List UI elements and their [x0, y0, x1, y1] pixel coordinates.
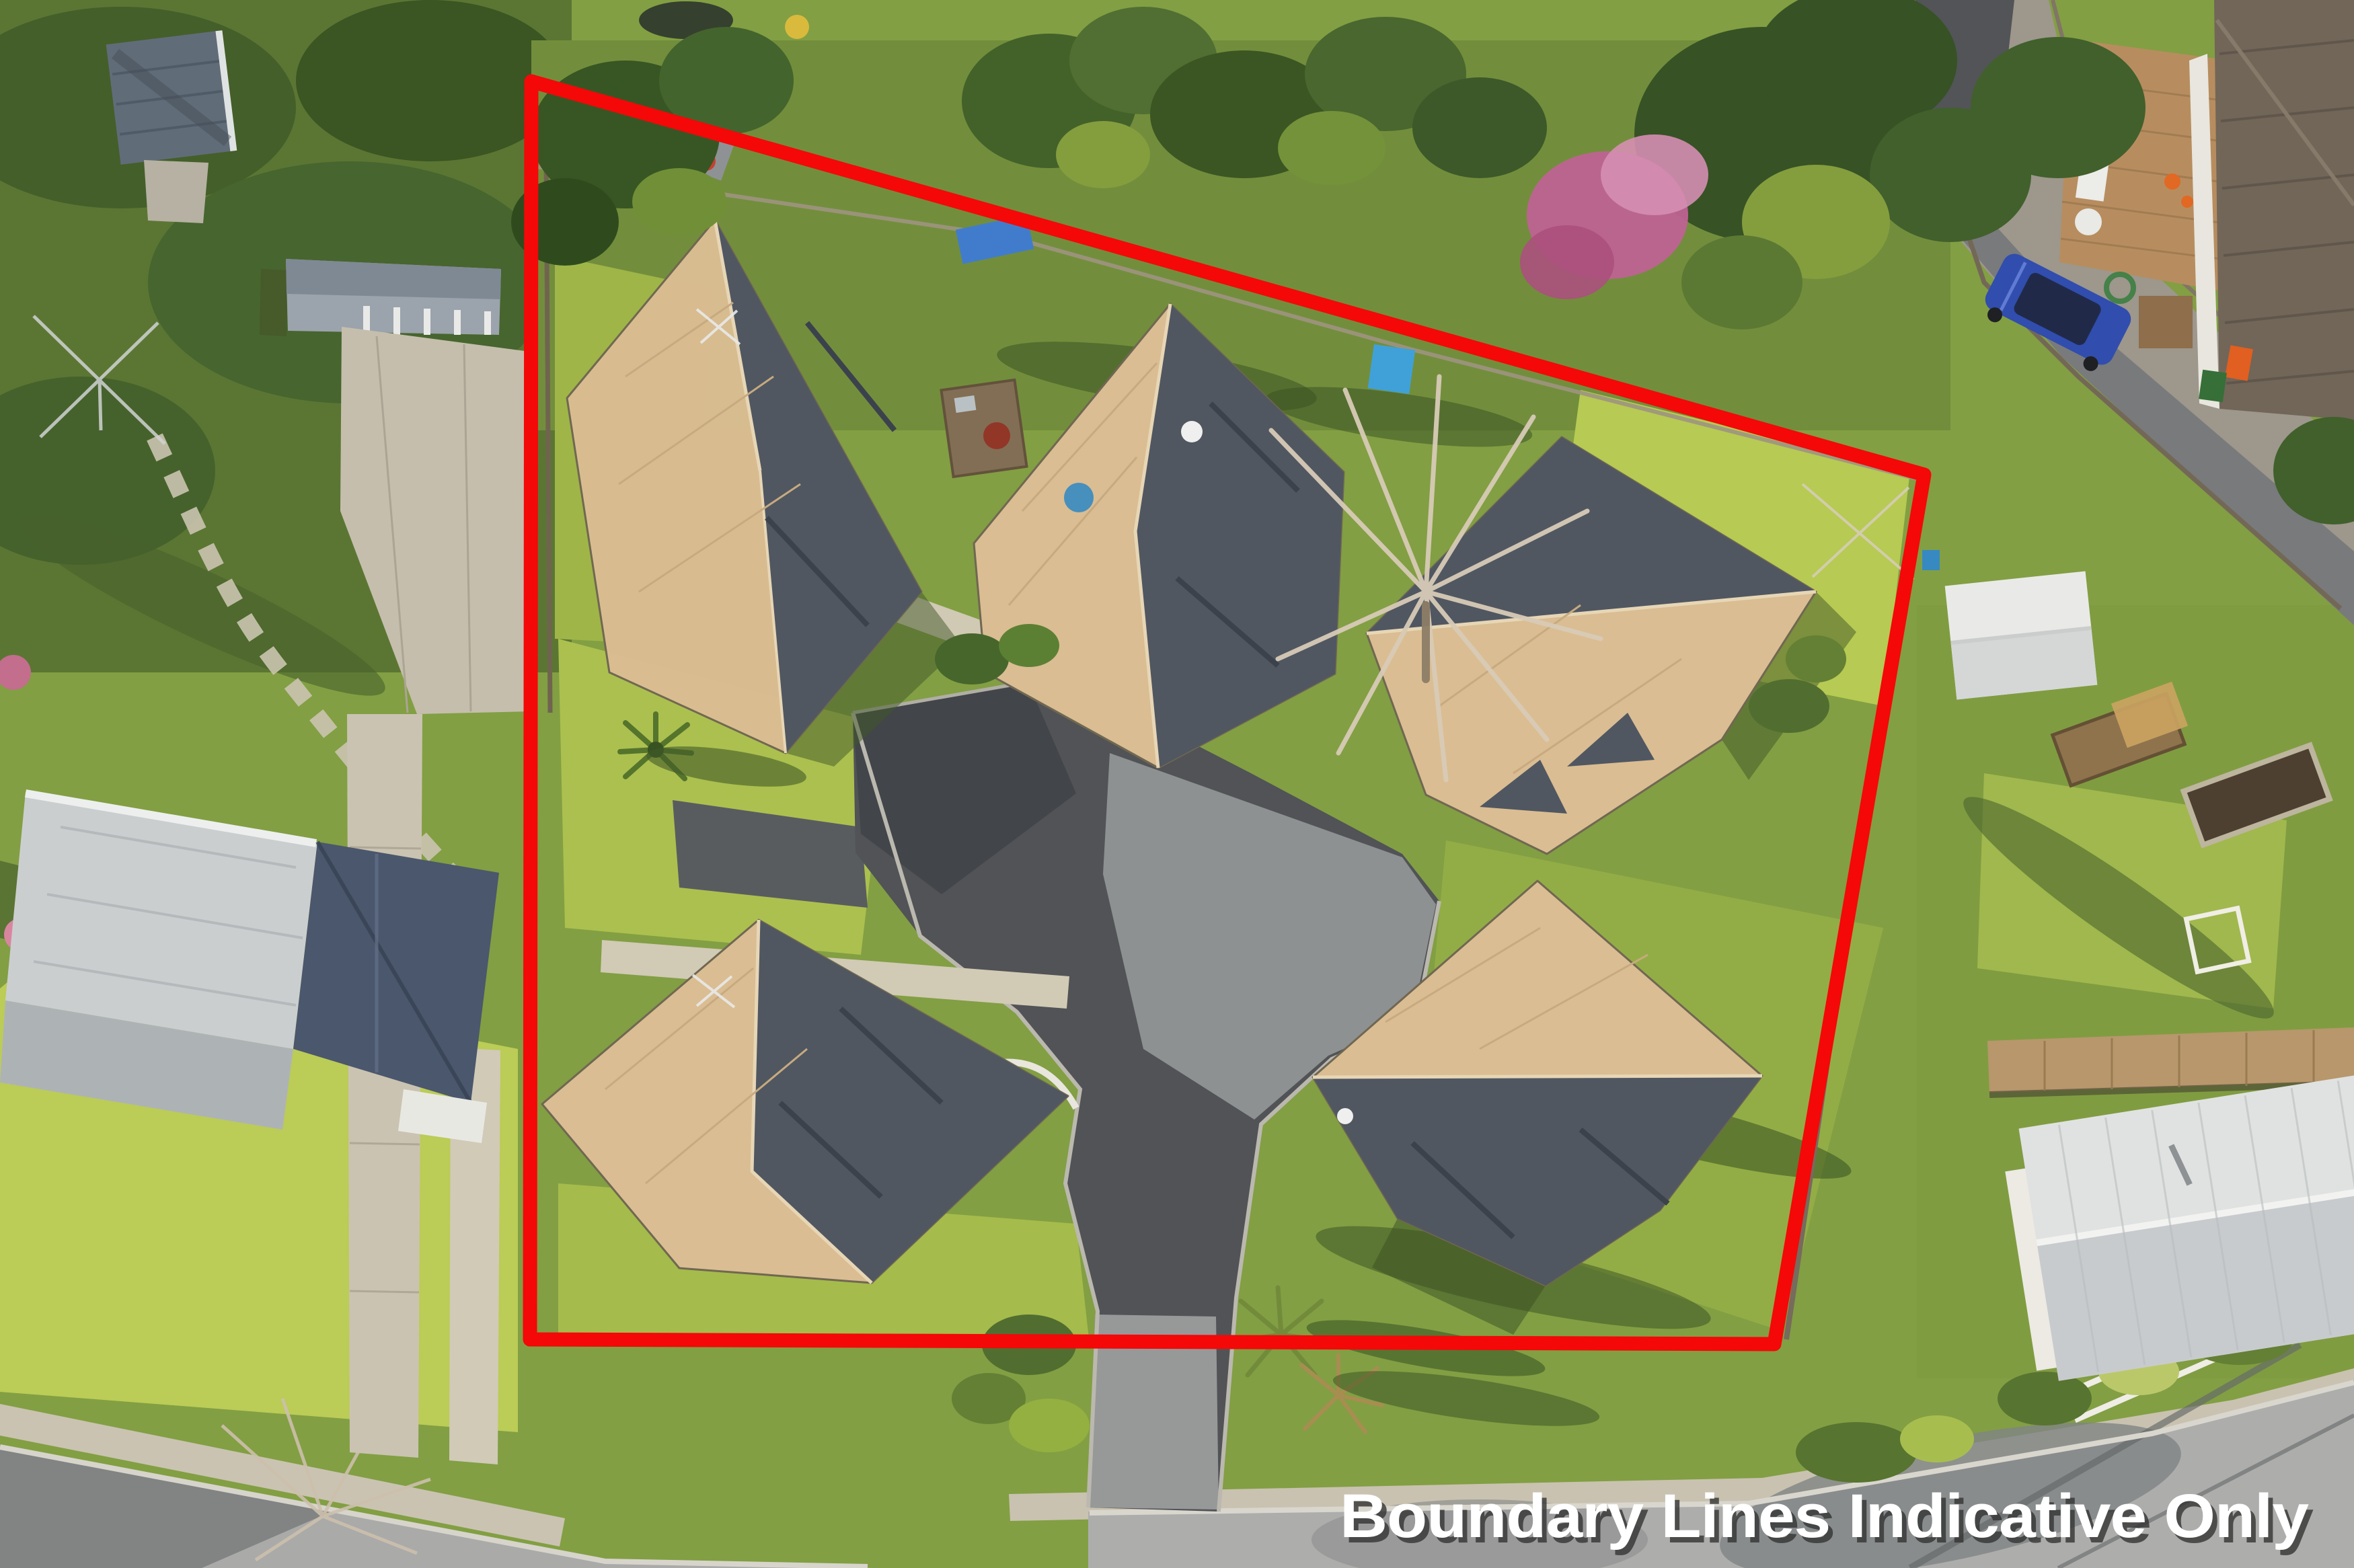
warm-light-tint	[0, 0, 2354, 1568]
screenshot-root: Boundary Lines Indicative Only Boundary …	[0, 0, 2354, 1568]
aerial-photo: Boundary Lines Indicative Only Boundary …	[0, 0, 2354, 1568]
watermark: Boundary Lines Indicative Only Boundary …	[1340, 1482, 2314, 1556]
watermark-text: Boundary Lines Indicative Only	[1340, 1482, 2309, 1551]
